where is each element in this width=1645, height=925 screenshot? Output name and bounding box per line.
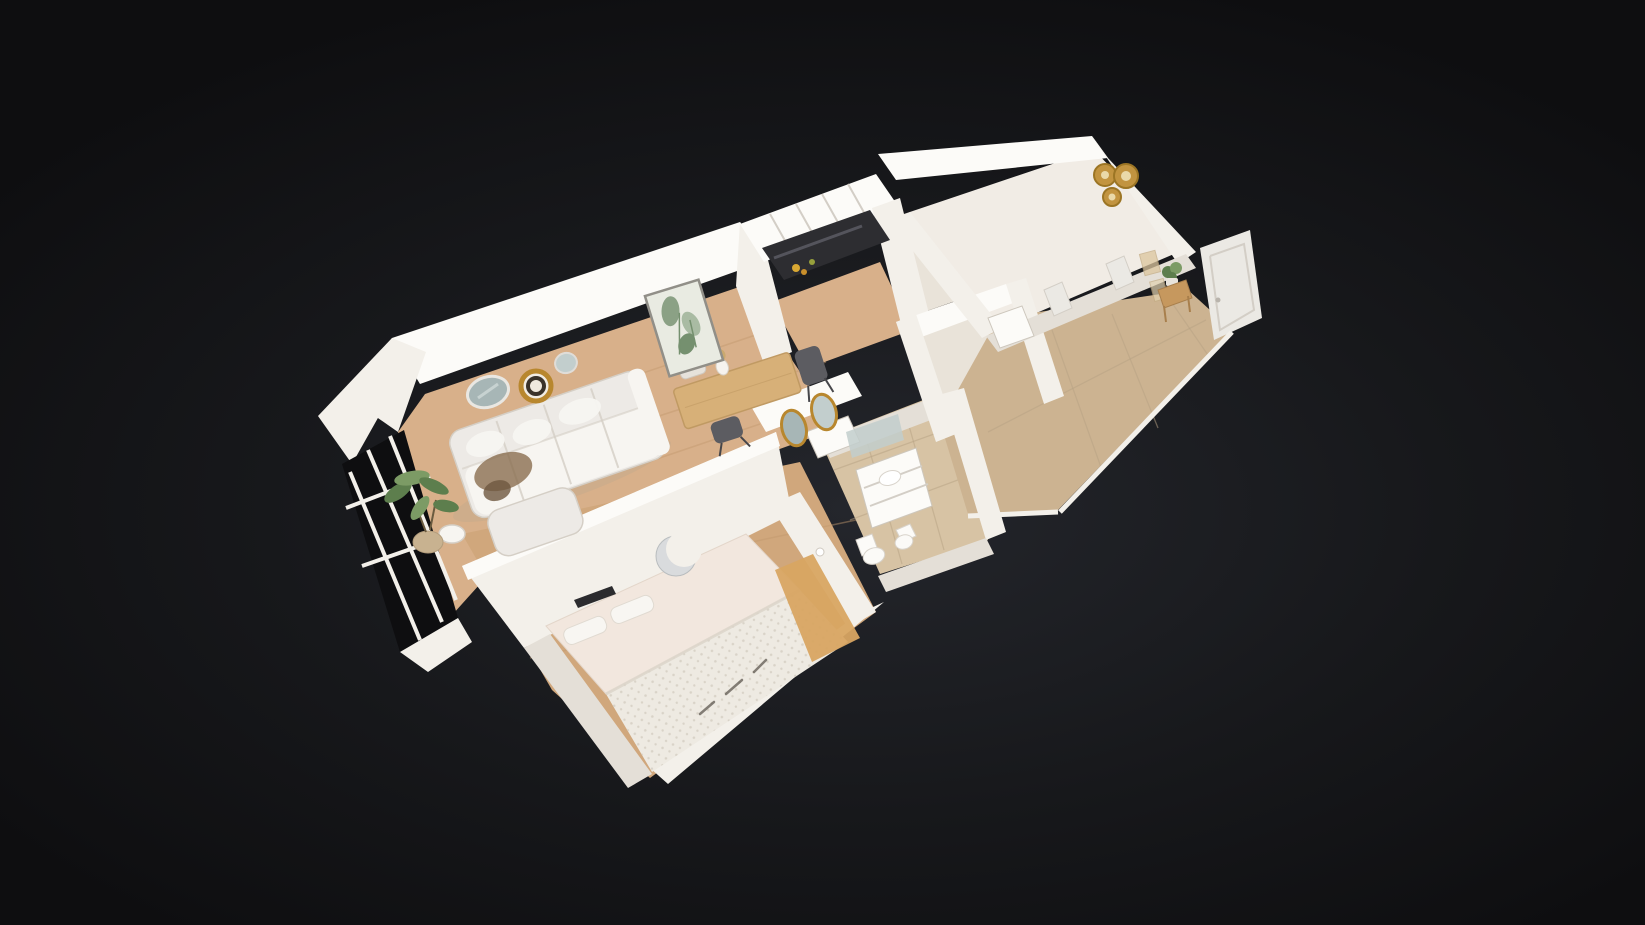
plant-pot <box>413 531 443 553</box>
fruit <box>792 264 800 272</box>
bedside-lamp <box>816 548 824 556</box>
fruit <box>809 259 815 265</box>
dollhouse-3d-view[interactable] <box>0 0 1645 925</box>
fruit <box>801 269 807 275</box>
door-handle <box>1216 298 1221 303</box>
